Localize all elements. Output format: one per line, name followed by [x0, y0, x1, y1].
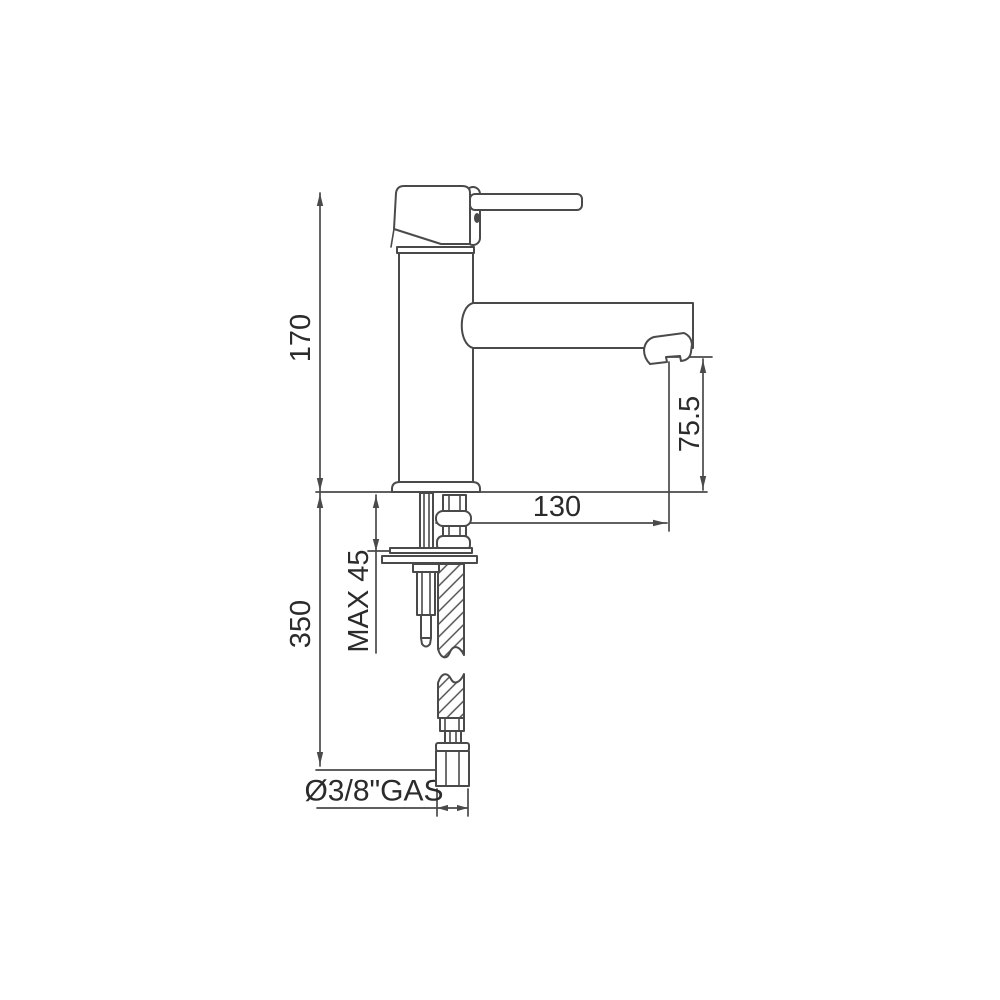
connection-hex-nut	[436, 751, 469, 786]
hose-neck	[445, 731, 461, 743]
stud-washer	[413, 564, 439, 572]
clamp-plate-upper	[390, 548, 472, 553]
aerator	[644, 333, 692, 364]
arrowhead-icon	[653, 520, 666, 526]
drawing-canvas: 170 350 MAX 45 75.5 130 Ø3/8"GAS	[0, 0, 1000, 1000]
below-deck-assembly	[382, 493, 477, 786]
arrowhead-icon	[373, 539, 379, 551]
arrowhead-icon	[317, 752, 323, 765]
hose-ferrule	[440, 718, 464, 731]
base-escutcheon	[392, 482, 480, 492]
label-below-deck-length: 350	[285, 600, 317, 648]
lever-handle	[470, 194, 582, 210]
arrowhead-icon	[373, 496, 379, 508]
arrowhead-icon	[457, 805, 468, 811]
faucet-body	[399, 253, 473, 482]
arrowhead-icon	[317, 495, 323, 508]
nut-collar	[436, 743, 469, 751]
arrowhead-icon	[317, 478, 323, 491]
cartridge-head	[394, 186, 470, 244]
flex-hose-lower	[438, 674, 464, 718]
fixing-stud	[420, 493, 433, 548]
stud-tip	[421, 638, 431, 647]
arrowhead-icon	[317, 193, 323, 206]
head-edge-line	[391, 229, 394, 247]
label-spout-reach: 130	[533, 491, 581, 523]
flex-hose-upper	[438, 564, 464, 657]
dimension-labels: 170 350 MAX 45 75.5 130 Ø3/8"GAS	[285, 314, 706, 808]
label-supply-connection: Ø3/8"GAS	[304, 775, 443, 808]
label-max-thickness: MAX 45	[343, 549, 375, 652]
stud-rod	[421, 615, 431, 638]
label-overall-height: 170	[285, 314, 317, 362]
fixing-nut	[417, 572, 435, 615]
hose-coupling-top	[443, 495, 466, 511]
hose-coupling-mid	[443, 526, 466, 536]
faucet-above-deck	[391, 186, 693, 492]
arrowhead-icon	[700, 476, 706, 489]
faucet-technical-drawing: 170 350 MAX 45 75.5 130 Ø3/8"GAS	[0, 0, 1000, 1000]
clamp-plate-lower	[382, 556, 477, 563]
dimension-lines	[316, 193, 712, 816]
hose-coupling-collar	[436, 511, 471, 526]
set-screw-icon	[474, 213, 480, 223]
arrowhead-icon	[700, 360, 706, 373]
label-outlet-height: 75.5	[674, 396, 706, 452]
